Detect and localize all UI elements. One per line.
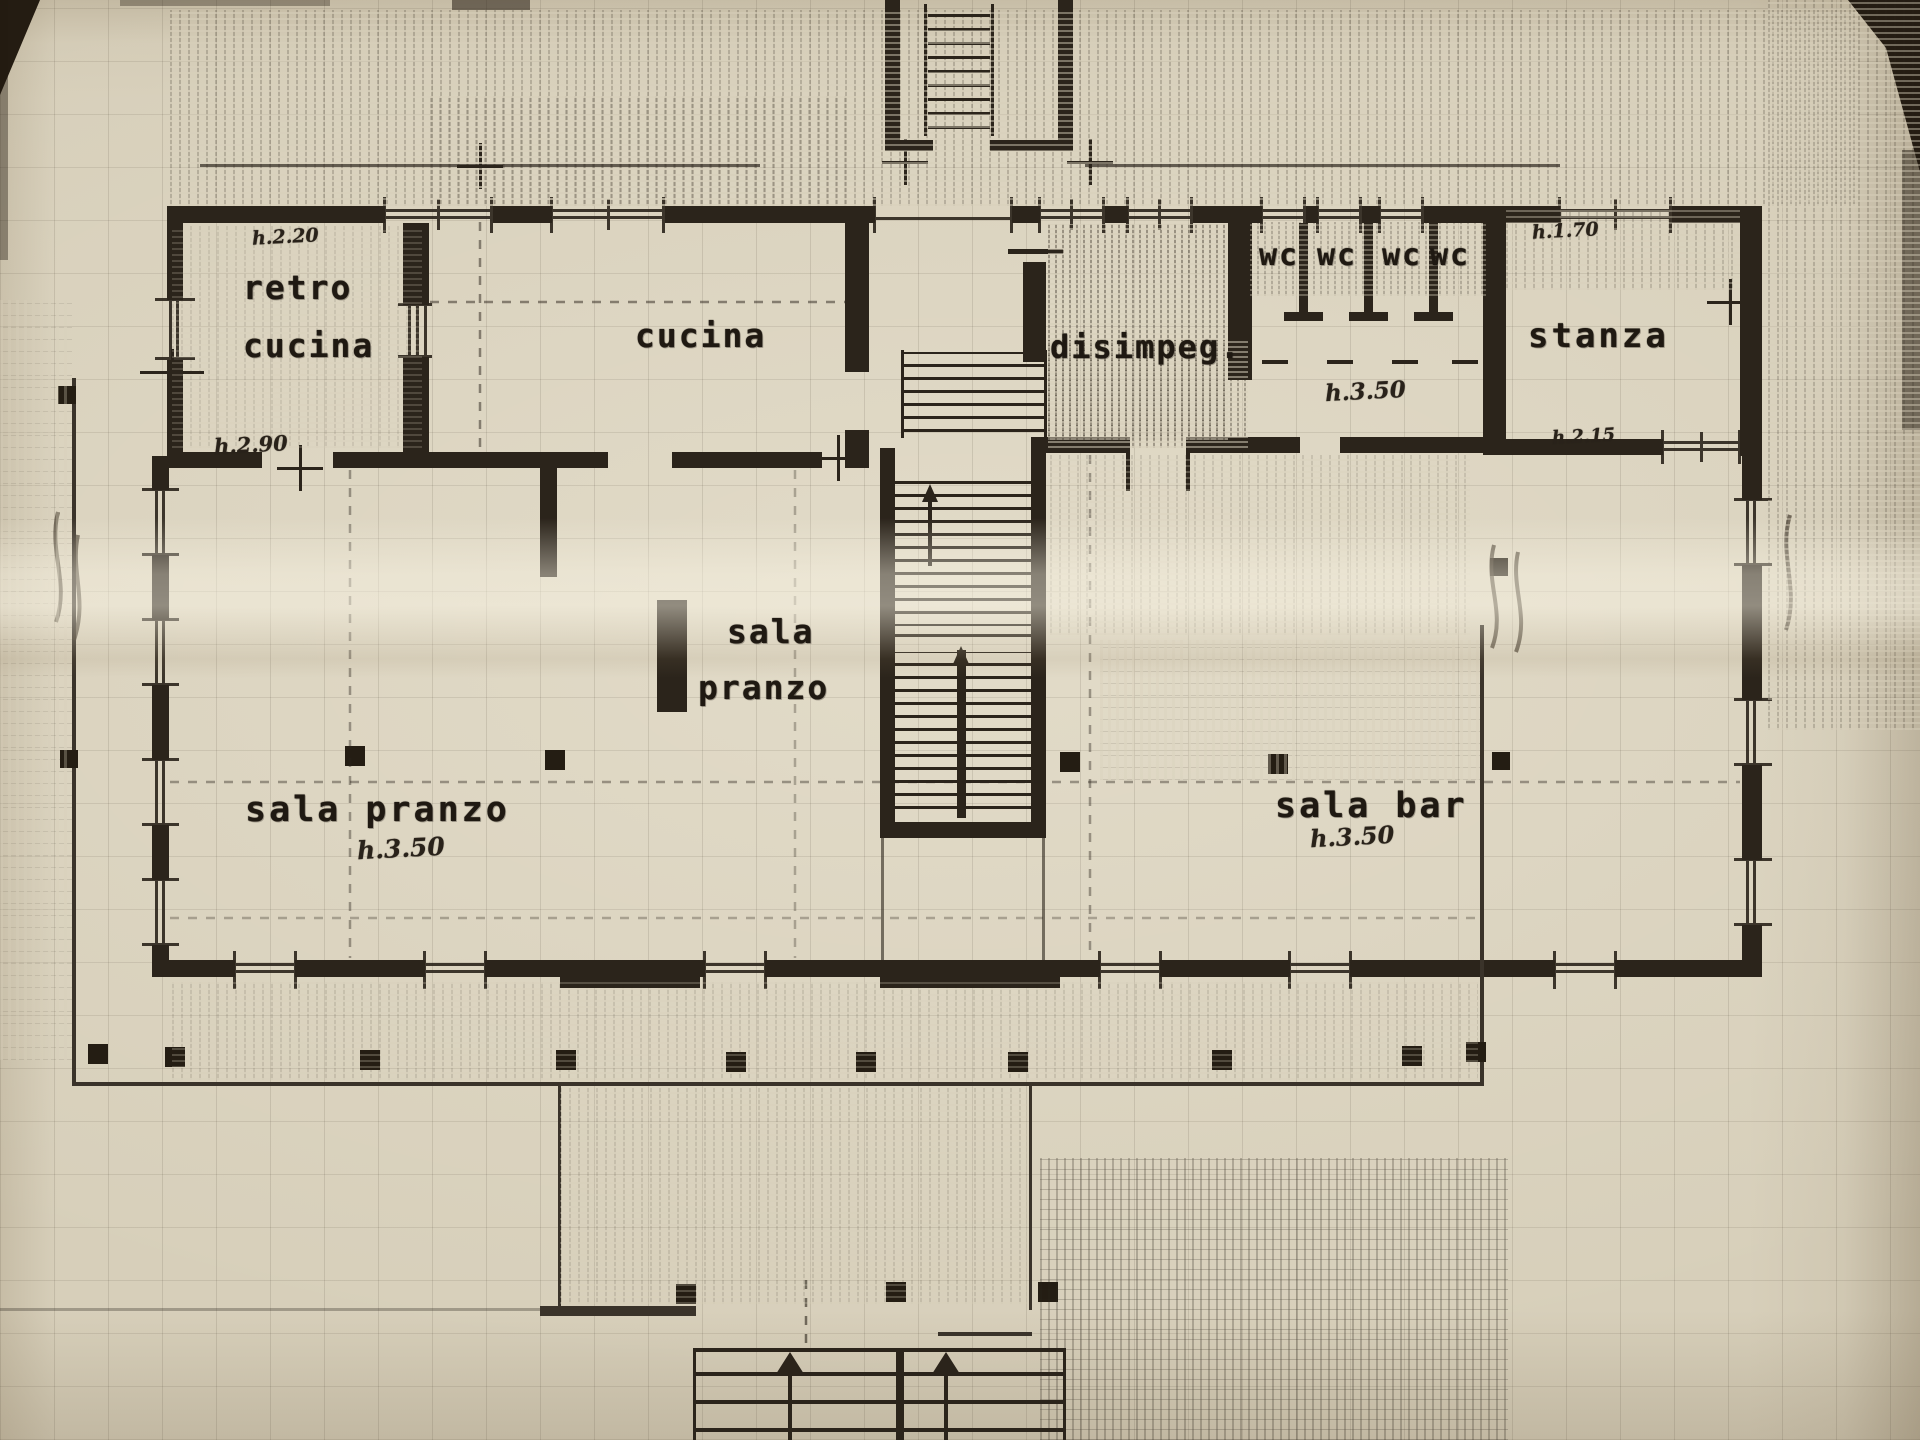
room-label-sala-small: sala <box>727 612 814 651</box>
terrace-group <box>0 164 1560 1336</box>
room-label-wc-1: wc <box>1259 238 1299 273</box>
room-label-cucina: cucina <box>635 316 766 355</box>
height-note-sala-pranzo: h.3.50 <box>356 832 445 866</box>
room-label-disimpegno: disimpeg. <box>1050 328 1241 366</box>
plan-drawing <box>0 0 1920 1440</box>
room-label-pranzo-small: pranzo <box>698 668 829 707</box>
height-note-wc: h.3.50 <box>1324 376 1406 407</box>
room-label-sala-pranzo: sala pranzo <box>245 790 510 830</box>
height-note-retro-cucina-left: h.2.90 <box>213 430 288 459</box>
height-note-stanza-bottom: h.2.15 <box>1551 424 1615 448</box>
room-label-retro: retro <box>243 268 352 307</box>
pillars-group <box>58 386 1510 1304</box>
height-note-retro-cucina-top: h.2.20 <box>251 224 319 249</box>
room-label-wc-4: wc <box>1430 238 1470 273</box>
dimension-crosses-group <box>140 139 1753 491</box>
height-note-sala-bar: h.3.50 <box>1309 820 1395 853</box>
room-label-wc-2: wc <box>1317 238 1357 273</box>
room-label-retro-cucina: cucina <box>243 326 374 365</box>
height-note-stanza-top: h.1.70 <box>1531 218 1599 243</box>
room-label-wc-3: wc <box>1382 238 1422 273</box>
scanned-floor-plan: h.2.20 retro cucina h.2.90 cucina disimp… <box>0 0 1920 1440</box>
room-label-stanza: stanza <box>1528 316 1669 356</box>
